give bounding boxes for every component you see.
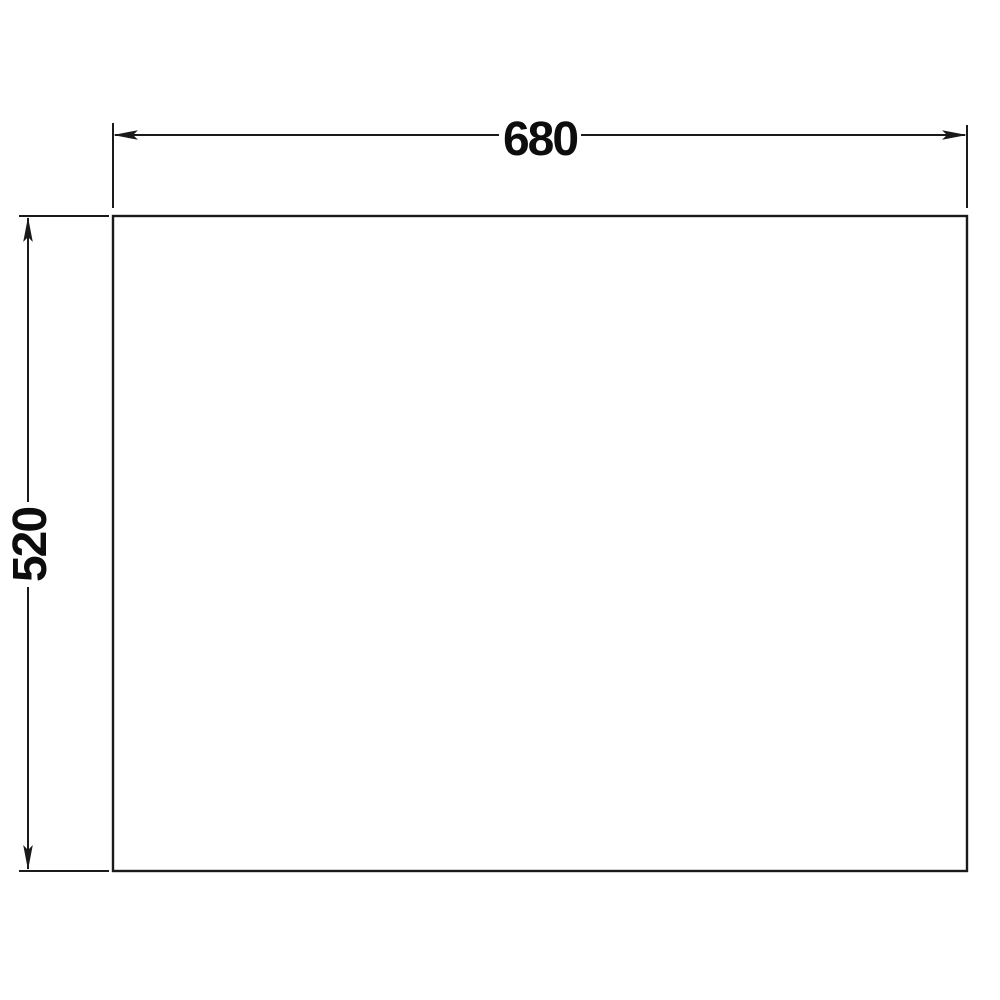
dimension-drawing-canvas: 680 520	[0, 0, 1000, 1000]
height-dimension: 520	[4, 216, 109, 871]
width-dimension: 680	[113, 113, 967, 208]
part-outline-rectangle	[113, 216, 967, 871]
height-dimension-label: 520	[4, 508, 57, 582]
width-dimension-label: 680	[503, 113, 577, 166]
technical-drawing: 680 520	[0, 0, 1000, 1000]
